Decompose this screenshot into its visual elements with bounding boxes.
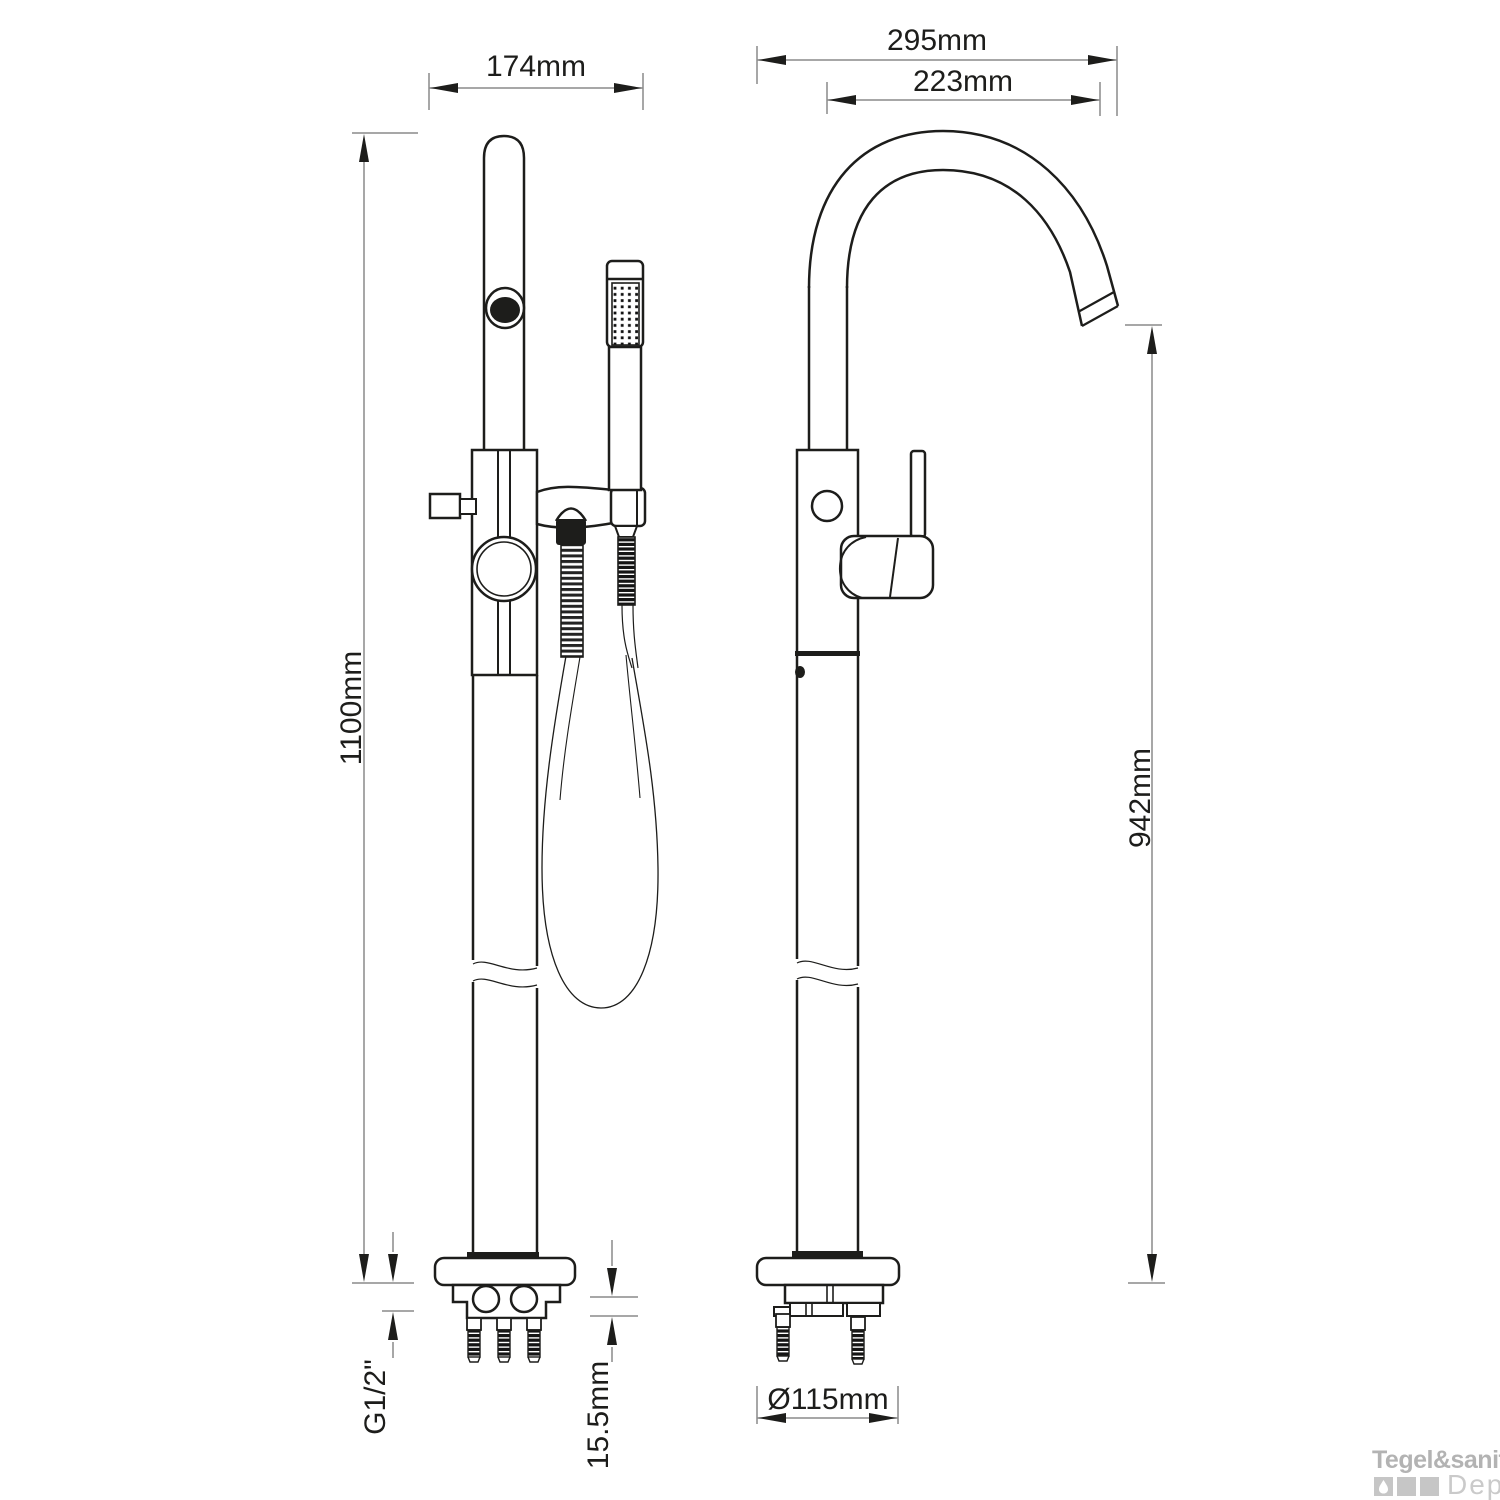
watermark-square xyxy=(1397,1477,1416,1496)
front-view xyxy=(430,136,658,1362)
watermark-depot-text: Depot xyxy=(1447,1469,1500,1500)
dim-label-thread: G1/2" xyxy=(359,1359,393,1435)
dim-label-plate-thickness: 15.5mm xyxy=(582,1361,616,1469)
dim-label-base-diameter: Ø115mm xyxy=(767,1383,888,1417)
droplet-icon xyxy=(1374,1477,1393,1496)
technical-drawing xyxy=(0,0,1500,1500)
dim-label-spout-reach: 223mm xyxy=(913,65,1013,99)
dim-label-front-width: 174mm xyxy=(486,50,586,84)
dim-label-spout-height: 942mm xyxy=(1124,748,1158,848)
dim-label-total-height: 1100mm xyxy=(335,651,369,766)
side-view xyxy=(757,131,1118,1364)
dim-label-depth: 295mm xyxy=(887,24,987,58)
drawing-canvas: 174mm 295mm 223mm 1100mm 942mm G1/2" 15.… xyxy=(0,0,1500,1500)
watermark-square xyxy=(1420,1477,1439,1496)
